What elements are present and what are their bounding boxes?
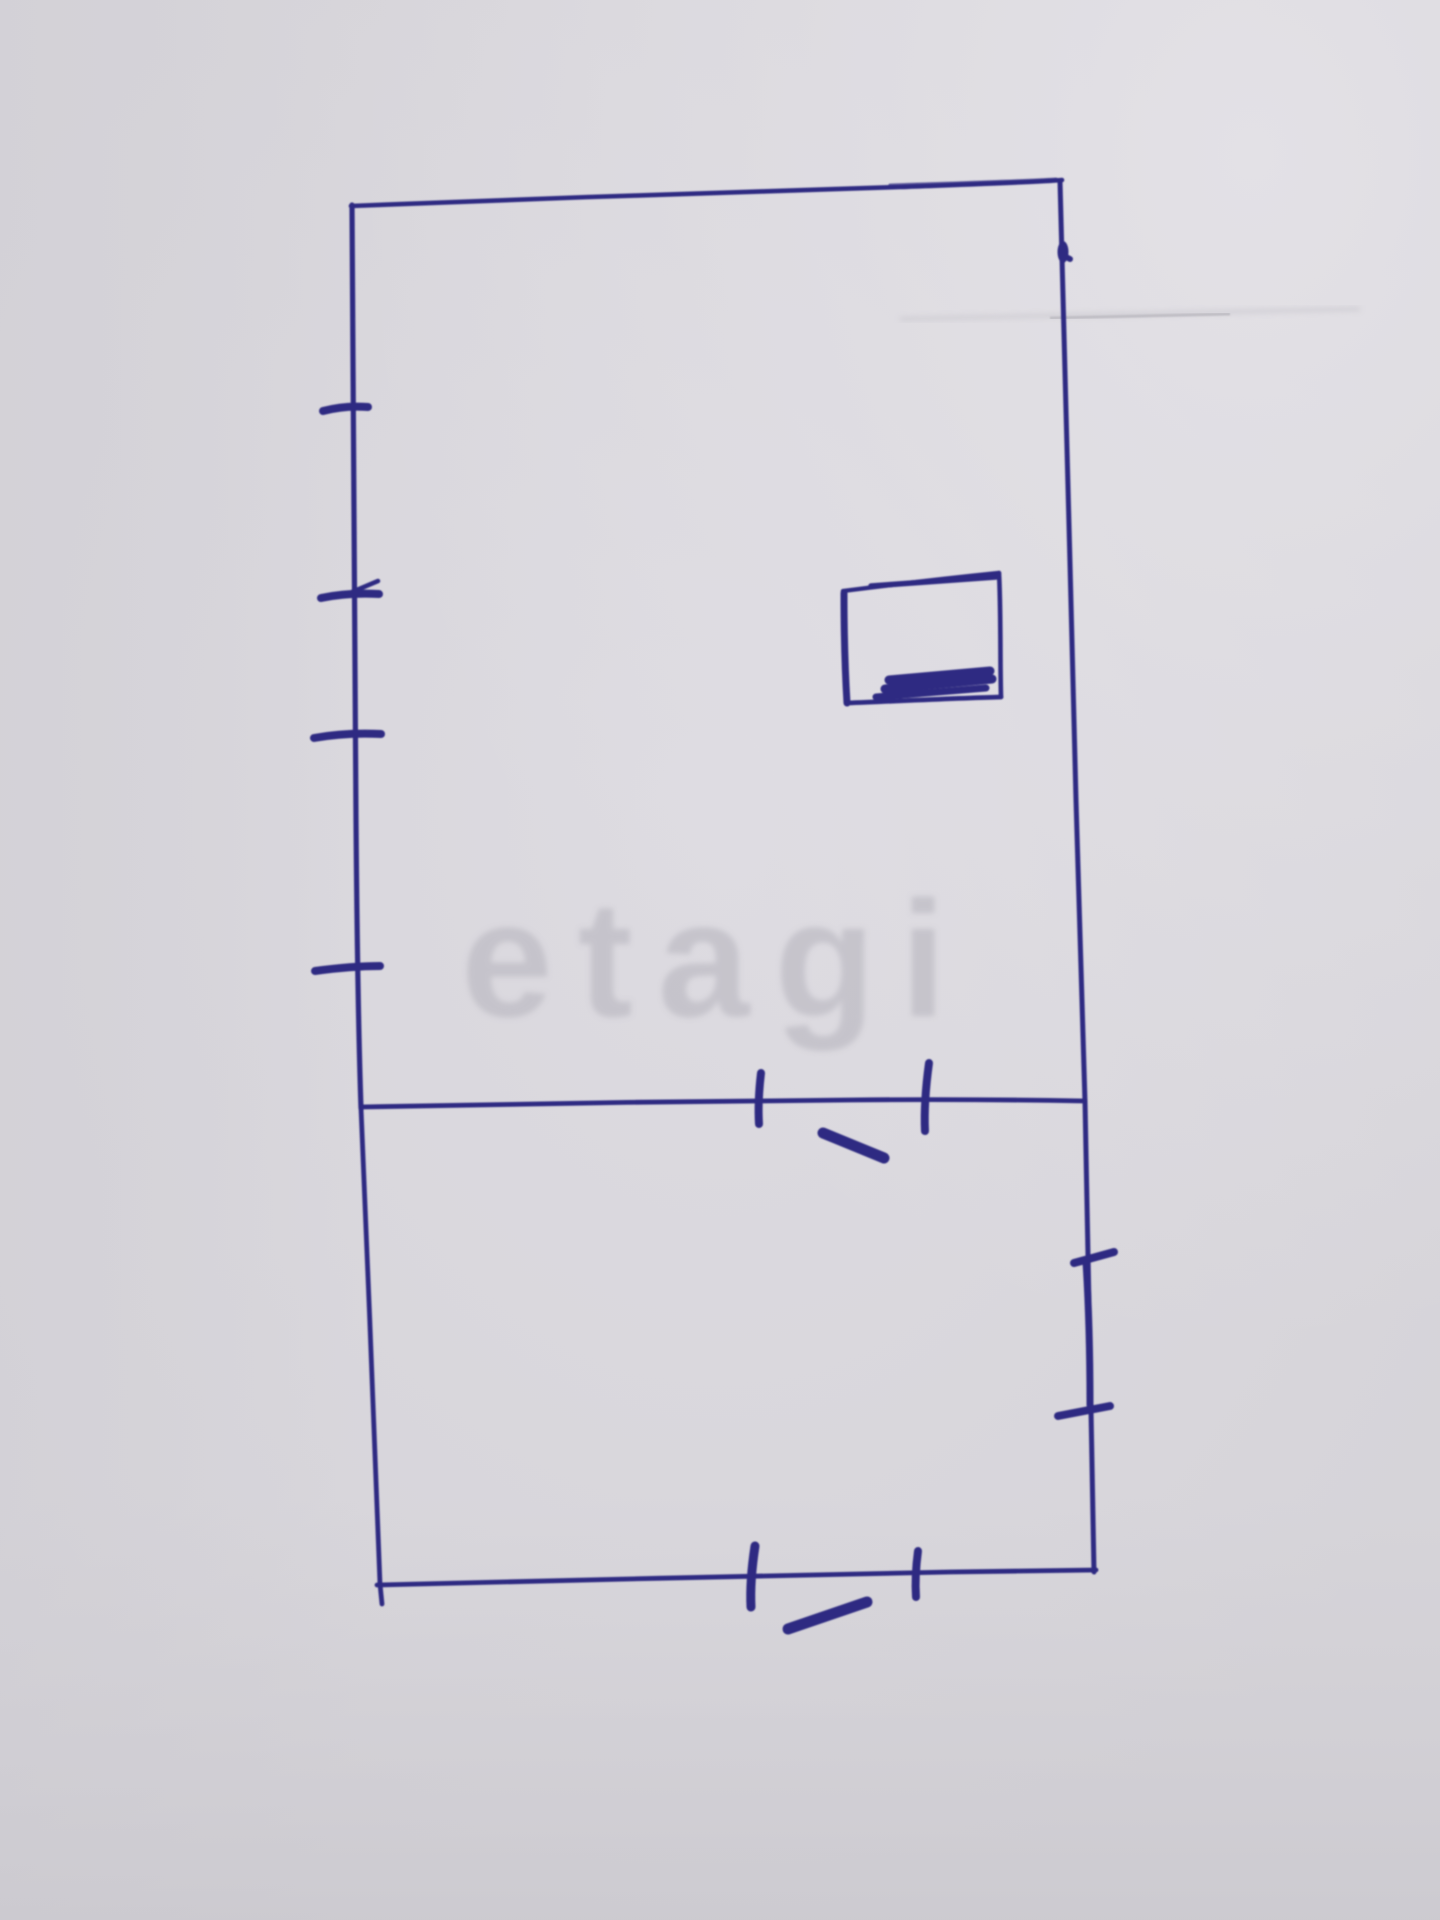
svg-text:etagi: etagi xyxy=(461,867,971,1051)
